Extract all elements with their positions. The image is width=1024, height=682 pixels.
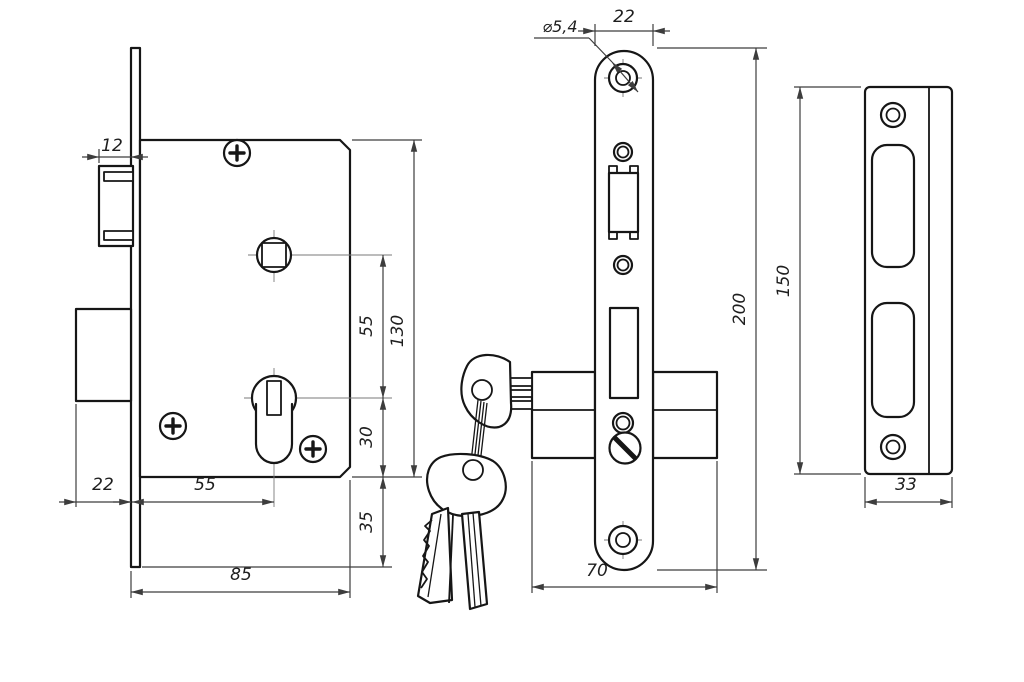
dim-strike-height: 150 (774, 87, 861, 474)
dim-label-35: 35 (357, 511, 377, 533)
dim-label-hole-diameter: ⌀5,4 (542, 17, 577, 36)
faceplate-front-view: 22 ⌀5,4 70 200 (418, 7, 767, 609)
dim-label-200: 200 (730, 293, 750, 325)
strike-plate (865, 87, 952, 474)
dim-strike-width: 33 (865, 475, 952, 508)
deadbolt-side (76, 309, 131, 401)
latch-cutout (609, 166, 638, 239)
strike-bottom-hole (881, 435, 905, 459)
strike-plate-view: 150 33 (774, 87, 952, 508)
dim-label-130: 130 (388, 315, 408, 347)
strike-top-hole (881, 103, 905, 127)
lock-body-side-view: 12 22 55 85 55 30 3 (59, 48, 422, 598)
faceplate-ring-hole-1 (614, 143, 632, 161)
strike-latch-cutout (872, 145, 914, 267)
dim-label-22-plate: 22 (613, 7, 635, 27)
latch-bolt-side (99, 166, 133, 246)
hanging-keys (418, 454, 506, 609)
dim-body-width: 85 (131, 480, 350, 598)
lock-technical-drawing: 12 22 55 85 55 30 3 (0, 0, 1024, 682)
deadbolt-cutout (610, 308, 638, 398)
dim-label-150: 150 (774, 265, 794, 297)
keys-illustration (418, 355, 532, 609)
dim-label-12: 12 (101, 136, 123, 156)
faceplate-ring-hole-2 (614, 256, 632, 274)
screw-bottom-right (300, 436, 326, 462)
dim-label-33: 33 (895, 475, 917, 495)
dim-label-22: 22 (92, 475, 114, 495)
screw-top (224, 140, 250, 166)
dim-label-30: 30 (357, 426, 377, 448)
dim-deadbolt-throw: 22 (59, 404, 131, 507)
dim-backset: 55 (132, 475, 274, 502)
faceplate-edge (131, 48, 140, 567)
screw-bottom-left (160, 413, 186, 439)
dim-label-85: 85 (230, 565, 252, 585)
faceplate-ring-hole-3 (613, 413, 633, 433)
drawing-canvas: 12 22 55 85 55 30 3 (0, 0, 1024, 682)
slotted-screw (610, 433, 641, 464)
dim-plate-height: 200 (657, 48, 767, 570)
dim-label-70: 70 (586, 561, 608, 581)
dim-label-55-backset: 55 (194, 475, 216, 495)
inserted-key (461, 355, 532, 428)
strike-deadbolt-cutout (872, 303, 914, 417)
dim-label-55-centers: 55 (357, 315, 377, 337)
